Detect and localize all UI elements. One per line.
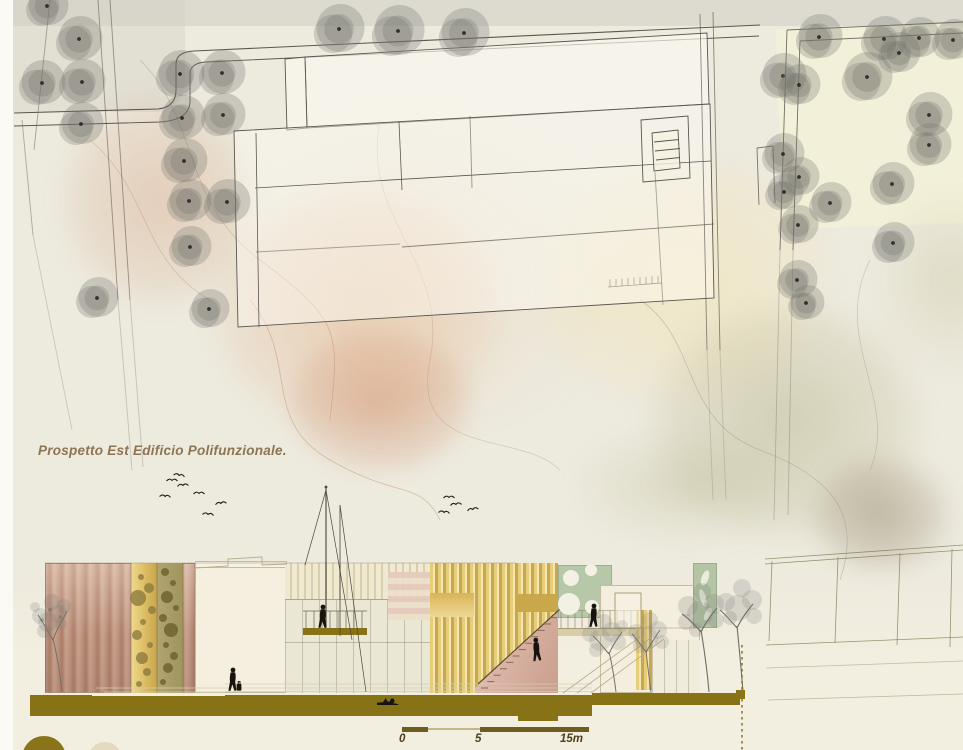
pedestrian-with-luggage <box>228 668 241 691</box>
elevation-tree-left <box>30 594 71 692</box>
scale-bar-segment-2 <box>480 727 589 732</box>
perforation-dot <box>140 619 146 625</box>
plinth-step-lines <box>96 684 592 692</box>
scale-tick-15m: 15m <box>560 733 583 745</box>
mast-structure <box>305 486 366 692</box>
panel-circle <box>558 593 580 615</box>
perforation-dot <box>144 583 154 593</box>
people-silhouettes <box>228 604 597 705</box>
staircase <box>478 609 560 688</box>
elevation-detail-layer <box>0 0 963 750</box>
perforation-dot <box>130 590 146 606</box>
elevation-title: Prospetto Est Edificio Polifunzionale. <box>38 443 287 458</box>
perforation-dot <box>161 568 169 576</box>
perforation-dot <box>159 614 167 622</box>
perforation-dot <box>163 642 169 648</box>
gold-strip-perforations <box>130 574 156 687</box>
perforation-dot <box>136 652 148 664</box>
perforation-dot <box>143 668 151 676</box>
parapet-step-line <box>195 557 287 585</box>
perforation-dot <box>161 591 173 603</box>
balcony-railing <box>303 611 367 628</box>
scale-tick-5: 5 <box>475 733 481 745</box>
perforation-dot <box>132 630 142 640</box>
scale-tick-0: 0 <box>399 733 405 745</box>
perforation-dot <box>163 663 173 673</box>
presentation-board: Prospetto Est Edificio Polifunzionale. 0… <box>0 0 963 750</box>
olive-strip-perforations <box>159 568 179 685</box>
pergola-sketch <box>765 545 963 700</box>
perforation-dot <box>148 606 156 614</box>
perforation-dot <box>138 574 144 580</box>
panel-circle <box>585 564 597 576</box>
perforation-dot <box>173 605 179 611</box>
perforation-dot <box>147 642 153 648</box>
panel-circle <box>563 570 579 586</box>
perforation-dot <box>164 623 178 637</box>
perforation-dot <box>170 580 176 586</box>
perforation-dot <box>136 681 142 687</box>
person-reclining <box>377 698 399 705</box>
person-on-balcony <box>318 605 326 628</box>
scale-bar-connector <box>428 728 480 730</box>
perforation-dot <box>160 679 166 685</box>
elevation-trees-right <box>678 579 762 692</box>
perforation-dot <box>170 652 178 660</box>
person-on-stair <box>531 637 541 661</box>
scale-bar-segment-1 <box>402 727 428 732</box>
